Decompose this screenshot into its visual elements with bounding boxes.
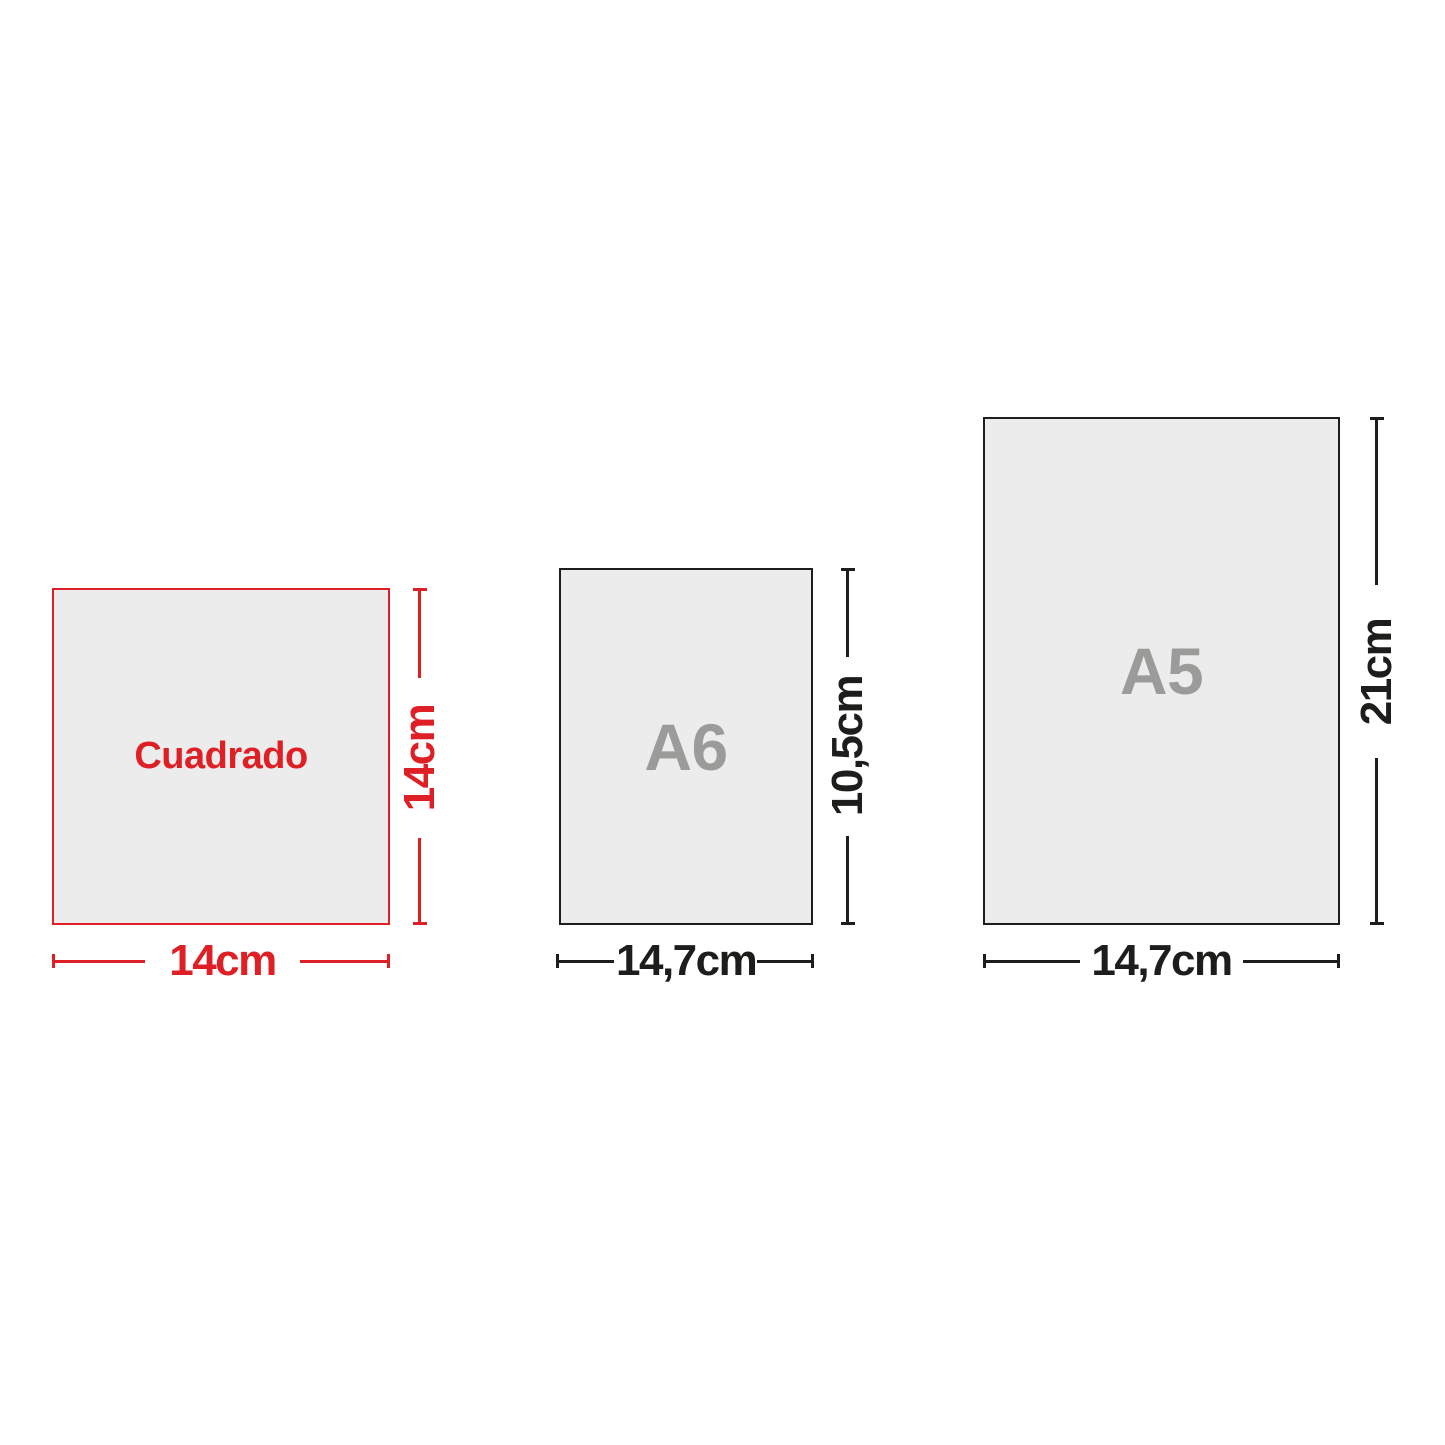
a6-height-line-upper xyxy=(846,571,849,657)
paper-size-comparison-diagram: Cuadrado 14cm 14cm A6 10,5cm 14,7cm xyxy=(0,0,1445,1445)
a6-height-line-lower xyxy=(846,836,849,922)
a6-width-line-left xyxy=(559,960,614,963)
cuadrado-width-line-right xyxy=(300,960,387,963)
cuadrado-width-tick-right xyxy=(387,954,390,968)
a5-label: A5 xyxy=(1120,633,1203,709)
a6-height-dimension-label: 10,5cm xyxy=(823,676,873,816)
a5-height-line-lower xyxy=(1375,758,1378,922)
a5-width-line-right xyxy=(1243,960,1337,963)
a5-height-line-upper xyxy=(1375,420,1378,585)
a6-width-line-right xyxy=(757,960,811,963)
cuadrado-width-dimension-label: 14cm xyxy=(145,936,300,986)
a6-width-tick-right xyxy=(811,954,814,968)
cuadrado-height-line-upper xyxy=(418,591,421,678)
cuadrado-label: Cuadrado xyxy=(134,735,307,778)
a6-height-tick-bottom xyxy=(841,922,855,925)
a6-paper: A6 xyxy=(559,568,813,925)
a5-width-tick-right xyxy=(1337,954,1340,968)
a5-width-line-left xyxy=(986,960,1080,963)
cuadrado-height-dimension-label: 14cm xyxy=(395,705,445,812)
cuadrado-paper: Cuadrado xyxy=(52,588,390,925)
a5-height-tick-bottom xyxy=(1370,922,1384,925)
cuadrado-width-line-left xyxy=(55,960,145,963)
a6-label: A6 xyxy=(644,709,727,785)
a5-height-dimension-label: 21cm xyxy=(1352,619,1402,726)
cuadrado-height-tick-bottom xyxy=(413,922,427,925)
a5-width-dimension-label: 14,7cm xyxy=(1080,936,1243,986)
cuadrado-height-line-lower xyxy=(418,838,421,922)
a6-width-dimension-label: 14,7cm xyxy=(616,936,756,986)
a5-paper: A5 xyxy=(983,417,1340,925)
